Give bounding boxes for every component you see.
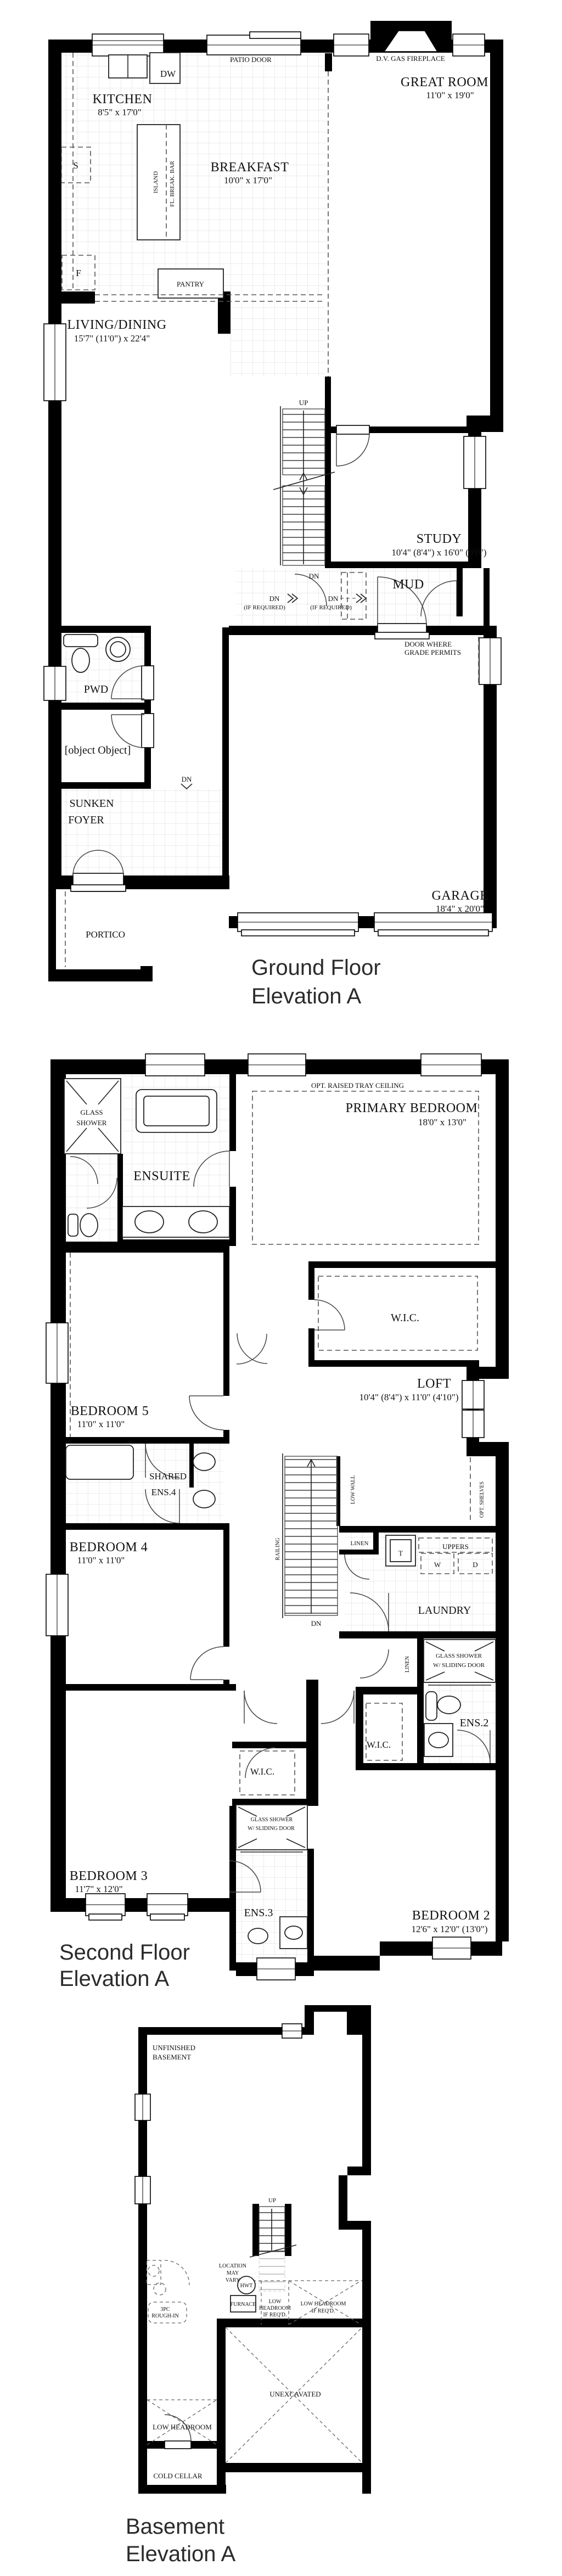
room-dim-bed4: 11'0" x 11'0" bbox=[77, 1555, 125, 1565]
label-pantry: PANTRY bbox=[177, 280, 205, 288]
room-label-wic-bed2: W.I.C. bbox=[367, 1739, 391, 1750]
label-uppers: UPPERS bbox=[442, 1542, 469, 1551]
basement-title: Basement bbox=[126, 2515, 224, 2539]
room-dim-living-dining: 15'7" (11'0") x 22'4" bbox=[74, 333, 150, 344]
room-label-wic-ground: [object Object] bbox=[65, 744, 131, 756]
room-label-pwd: PWD bbox=[84, 683, 108, 695]
basement-plan: UNFINISHED BASEMENT UP LOCATION MAY VARY… bbox=[126, 2005, 371, 2566]
label-dn-second: DN bbox=[311, 1619, 322, 1627]
label-dn-left: DN bbox=[269, 594, 280, 603]
label-hwt: HWT bbox=[240, 2283, 253, 2289]
label-lowheadroom-a1: LOW bbox=[269, 2299, 282, 2305]
room-dim-bed2: 12'6" x 12'0" (13'0") bbox=[411, 1924, 487, 1934]
label-if-required-left: (IF REQUIRED) bbox=[244, 604, 285, 611]
room-label-ens4-2: ENS.4 bbox=[151, 1487, 176, 1497]
label-dn-mid: DN bbox=[328, 594, 339, 603]
label-glass-shower-1: GLASS bbox=[80, 1108, 103, 1116]
label-door-grade-2: GRADE PERMITS bbox=[404, 648, 461, 656]
room-dim-loft: 10'4" (8'4") x 11'0" (4'10") bbox=[359, 1392, 458, 1402]
ground-floor-subtitle: Elevation A bbox=[251, 984, 361, 1008]
label-linen: LINEN bbox=[351, 1540, 369, 1547]
label-door-grade-1: DOOR WHERE bbox=[404, 640, 452, 648]
label-patio-door: PATIO DOOR bbox=[230, 55, 272, 64]
label-low-wall: LOW WALL bbox=[350, 1475, 356, 1505]
room-label-laundry: LAUNDRY bbox=[418, 1604, 471, 1617]
label-break-bar: FL. BREAK. BAR bbox=[169, 160, 176, 206]
room-label-portico: PORTICO bbox=[86, 929, 125, 940]
room-dim-study: 10'4" (8'4") x 16'0" (9'0") bbox=[391, 547, 486, 558]
label-cold-cellar: COLD CELLAR bbox=[153, 2472, 203, 2480]
label-lowheadroom-b2: IF REQ'D. bbox=[312, 2308, 335, 2314]
label-location-3: VARY bbox=[226, 2277, 240, 2283]
room-label-ens4-1: SHARED bbox=[149, 1471, 187, 1481]
label-dryer: D bbox=[473, 1561, 477, 1569]
room-dim-bed5: 11'0" x 11'0" bbox=[77, 1419, 125, 1429]
label-glass-shower-2: SHOWER bbox=[77, 1119, 107, 1127]
label-glass-slide-ens3-2: W/ SLIDING DOOR bbox=[248, 1826, 295, 1832]
label-lowheadroom-a3: IF REQ'D. bbox=[263, 2312, 287, 2318]
label-unfinished-2: BASEMENT bbox=[153, 2053, 191, 2061]
room-label-wic-primary: W.I.C. bbox=[391, 1312, 419, 1324]
room-label-primary: PRIMARY BEDROOM bbox=[346, 1101, 478, 1115]
basement-bump-notch bbox=[314, 2012, 347, 2035]
room-dim-kitchen: 8'5" x 17'0" bbox=[98, 107, 142, 117]
room-label-great-room: GREAT ROOM bbox=[401, 75, 488, 89]
label-dn-foyer: DN bbox=[182, 775, 192, 783]
room-label-ens3: ENS.3 bbox=[244, 1907, 273, 1919]
room-label-ensuite: ENSUITE bbox=[133, 1169, 190, 1183]
label-lowheadroom: LOW HEADROOM bbox=[153, 2423, 212, 2431]
room-label-wic-bed3: W.I.C. bbox=[250, 1766, 274, 1777]
label-opt-tray: OPT. RAISED TRAY CEILING bbox=[311, 1081, 404, 1090]
label-roughin-2: ROUGH-IN bbox=[151, 2313, 178, 2319]
label-location-2: MAY bbox=[227, 2270, 239, 2276]
room-label-bed4: BEDROOM 4 bbox=[70, 1540, 148, 1554]
label-island: ISLAND bbox=[153, 171, 159, 193]
label-glass-slide-ens3-1: GLASS SHOWER bbox=[251, 1817, 293, 1823]
room-dim-garage: 18'4" x 20'0" bbox=[436, 903, 484, 914]
label-dn-stairs: DN bbox=[309, 572, 319, 580]
label-unexcavated: UNEXCAVATED bbox=[269, 2390, 321, 2398]
room-dim-bed3: 11'7" x 12'0" bbox=[75, 1884, 122, 1894]
label-up: UP bbox=[299, 399, 308, 407]
basement-dashed bbox=[147, 2260, 362, 2463]
label-unfinished-1: UNFINISHED bbox=[153, 2044, 195, 2052]
room-label-loft: LOFT bbox=[417, 1377, 451, 1391]
second-floor-title: Second Floor bbox=[59, 1940, 190, 1965]
room-label-study: STUDY bbox=[417, 532, 462, 546]
basement-equipment bbox=[165, 2276, 256, 2441]
label-sink: S bbox=[73, 160, 78, 171]
ground-floor-plan: KITCHEN 8'5" x 17'0" PATIO DOOR DW D.V. … bbox=[44, 21, 503, 1008]
room-label-ens2: ENS.2 bbox=[460, 1717, 489, 1729]
label-location-1: LOCATION bbox=[219, 2263, 246, 2269]
room-dim-primary: 18'0" x 13'0" bbox=[418, 1117, 467, 1127]
label-glass-slide-ens2-1: GLASS SHOWER bbox=[436, 1653, 482, 1659]
room-dim-great-room: 11'0" x 19'0" bbox=[426, 90, 474, 100]
label-lowheadroom-a2: HEADROOM bbox=[259, 2305, 291, 2311]
ground-floor-title: Ground Floor bbox=[251, 956, 381, 980]
room-label-breakfast: BREAKFAST bbox=[211, 160, 289, 175]
label-if-required-mid: (IF REQUIRED) bbox=[310, 604, 352, 611]
label-roughin-1: 3PC bbox=[160, 2306, 170, 2313]
label-fridge: F bbox=[76, 268, 81, 278]
room-label-foyer: FOYER bbox=[68, 814, 104, 826]
second-floor-subtitle: Elevation A bbox=[59, 1967, 169, 1991]
label-gas-fireplace: D.V. GAS FIREPLACE bbox=[376, 54, 445, 63]
room-label-garage: GARAGE bbox=[432, 889, 488, 903]
basement-walls bbox=[138, 2005, 371, 2494]
label-glass-slide-ens2-2: W/ SLIDING DOOR bbox=[433, 1662, 485, 1669]
label-lowheadroom-b1: LOW HEADROOM bbox=[301, 2301, 346, 2307]
label-furnace: FURNACE bbox=[231, 2302, 256, 2308]
label-linen-vertical: LINEN bbox=[404, 1656, 411, 1673]
room-label-living-dining: LIVING/DINING bbox=[67, 318, 166, 332]
label-up-basement: UP bbox=[268, 2197, 276, 2204]
label-washer: W bbox=[434, 1561, 441, 1569]
room-label-bed5: BEDROOM 5 bbox=[71, 1404, 149, 1418]
basement-subtitle: Elevation A bbox=[126, 2542, 235, 2566]
second-stairs-down bbox=[283, 1453, 338, 1618]
label-dw: DW bbox=[160, 69, 176, 79]
label-opt-shelves: OPT. SHELVES bbox=[479, 1481, 485, 1518]
floorplan-drawing: KITCHEN 8'5" x 17'0" PATIO DOOR DW D.V. … bbox=[0, 0, 562, 2576]
room-label-kitchen: KITCHEN bbox=[93, 92, 153, 106]
floorplan-sheet: KITCHEN 8'5" x 17'0" PATIO DOOR DW D.V. … bbox=[0, 0, 562, 2576]
room-label-bed3: BEDROOM 3 bbox=[70, 1869, 148, 1883]
label-laundry-tub: T bbox=[398, 1549, 403, 1557]
label-railing: RAILING bbox=[275, 1537, 281, 1560]
room-dim-breakfast: 10'0" x 17'0" bbox=[224, 175, 272, 186]
room-label-mud: MUD bbox=[392, 577, 424, 592]
room-label-sunken: SUNKEN bbox=[69, 798, 114, 810]
second-floor-plan: GLASS SHOWER ENSUITE OPT. RAISED TRAY CE… bbox=[46, 1054, 509, 1991]
room-label-bed2: BEDROOM 2 bbox=[412, 1909, 491, 1923]
